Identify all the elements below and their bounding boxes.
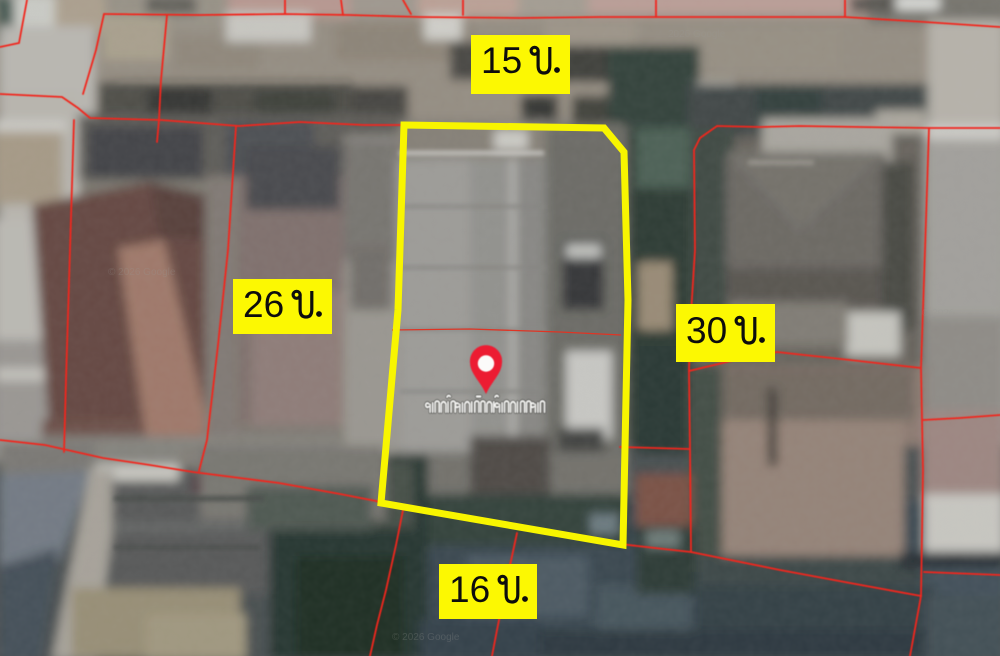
svg-text:26: 26 [243, 284, 284, 325]
svg-text:2026 Google: 2026 Google [668, 29, 726, 40]
svg-text:16: 16 [449, 569, 490, 610]
svg-text:15: 15 [481, 40, 522, 81]
svg-text:30: 30 [686, 310, 727, 351]
svg-text:© 2026 Google: © 2026 Google [392, 632, 460, 643]
svg-text:© 2026 Google: © 2026 Google [108, 267, 176, 278]
svg-text:© 2026: © 2026 [922, 308, 955, 319]
